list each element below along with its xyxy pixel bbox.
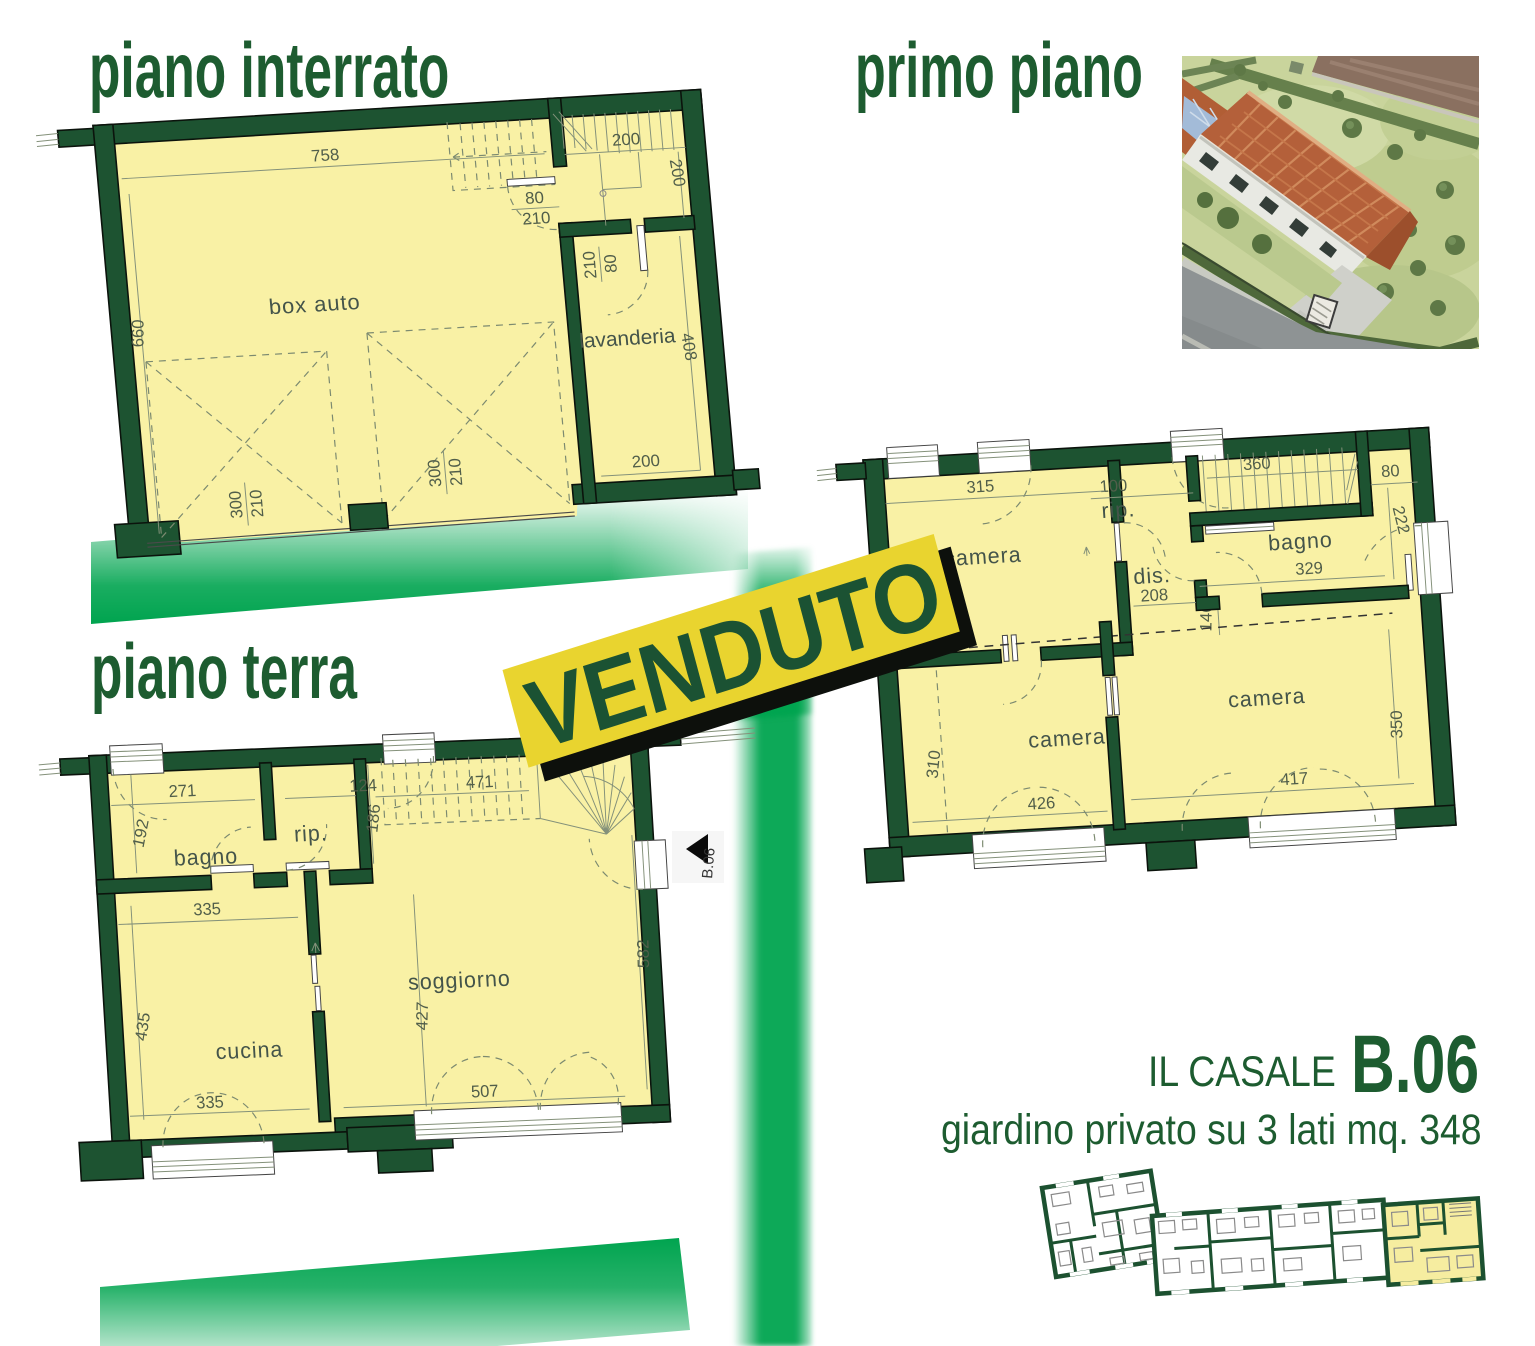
svg-text:582: 582 bbox=[634, 939, 653, 968]
svg-text:soggiorno: soggiorno bbox=[407, 965, 511, 995]
svg-text:210: 210 bbox=[246, 489, 268, 518]
svg-text:315: 315 bbox=[966, 476, 995, 497]
svg-text:80: 80 bbox=[600, 254, 621, 274]
svg-text:IL CASALE: IL CASALE bbox=[1148, 1048, 1336, 1096]
svg-text:208: 208 bbox=[1140, 585, 1169, 606]
svg-text:rip.: rip. bbox=[293, 820, 328, 847]
svg-text:bagno: bagno bbox=[1267, 527, 1333, 556]
svg-text:310: 310 bbox=[923, 749, 945, 779]
svg-text:100: 100 bbox=[1099, 476, 1128, 497]
svg-text:210: 210 bbox=[445, 458, 467, 487]
svg-text:210: 210 bbox=[521, 208, 551, 228]
svg-text:507: 507 bbox=[470, 1081, 499, 1101]
svg-text:360: 360 bbox=[1242, 453, 1271, 474]
svg-text:piano interrato: piano interrato bbox=[89, 27, 449, 114]
svg-text:200: 200 bbox=[611, 129, 641, 149]
svg-text:186: 186 bbox=[363, 803, 385, 834]
svg-text:471: 471 bbox=[465, 772, 494, 792]
svg-text:271: 271 bbox=[168, 781, 197, 801]
svg-text:80: 80 bbox=[524, 188, 544, 208]
svg-text:B.06: B.06 bbox=[1351, 1019, 1479, 1110]
svg-text:350: 350 bbox=[1387, 710, 1406, 738]
svg-text:piano terra: piano terra bbox=[91, 628, 358, 715]
svg-text:335: 335 bbox=[193, 899, 222, 919]
svg-text:426: 426 bbox=[1027, 793, 1056, 814]
svg-text:camera: camera bbox=[1227, 683, 1306, 713]
svg-text:200: 200 bbox=[631, 451, 661, 471]
svg-text:300: 300 bbox=[225, 490, 247, 519]
svg-text:primo piano: primo piano bbox=[855, 27, 1143, 114]
svg-text:427: 427 bbox=[413, 1001, 432, 1031]
svg-text:435: 435 bbox=[131, 1011, 153, 1042]
svg-text:124: 124 bbox=[349, 775, 378, 795]
svg-text:660: 660 bbox=[128, 319, 147, 347]
svg-text:B.06: B.06 bbox=[699, 847, 719, 879]
svg-text:rip.: rip. bbox=[1101, 496, 1136, 523]
svg-text:300: 300 bbox=[424, 459, 446, 488]
svg-text:329: 329 bbox=[1295, 558, 1324, 579]
svg-text:giardino privato su 3 lati mq.: giardino privato su 3 lati mq. 348 bbox=[941, 1106, 1482, 1154]
svg-text:80: 80 bbox=[1381, 461, 1401, 481]
svg-text:210: 210 bbox=[579, 250, 601, 279]
svg-text:335: 335 bbox=[196, 1092, 225, 1112]
svg-text:cucina: cucina bbox=[215, 1036, 284, 1064]
svg-text:758: 758 bbox=[310, 145, 340, 165]
svg-text:bagno: bagno bbox=[173, 843, 239, 871]
svg-text:camera: camera bbox=[1027, 723, 1106, 753]
